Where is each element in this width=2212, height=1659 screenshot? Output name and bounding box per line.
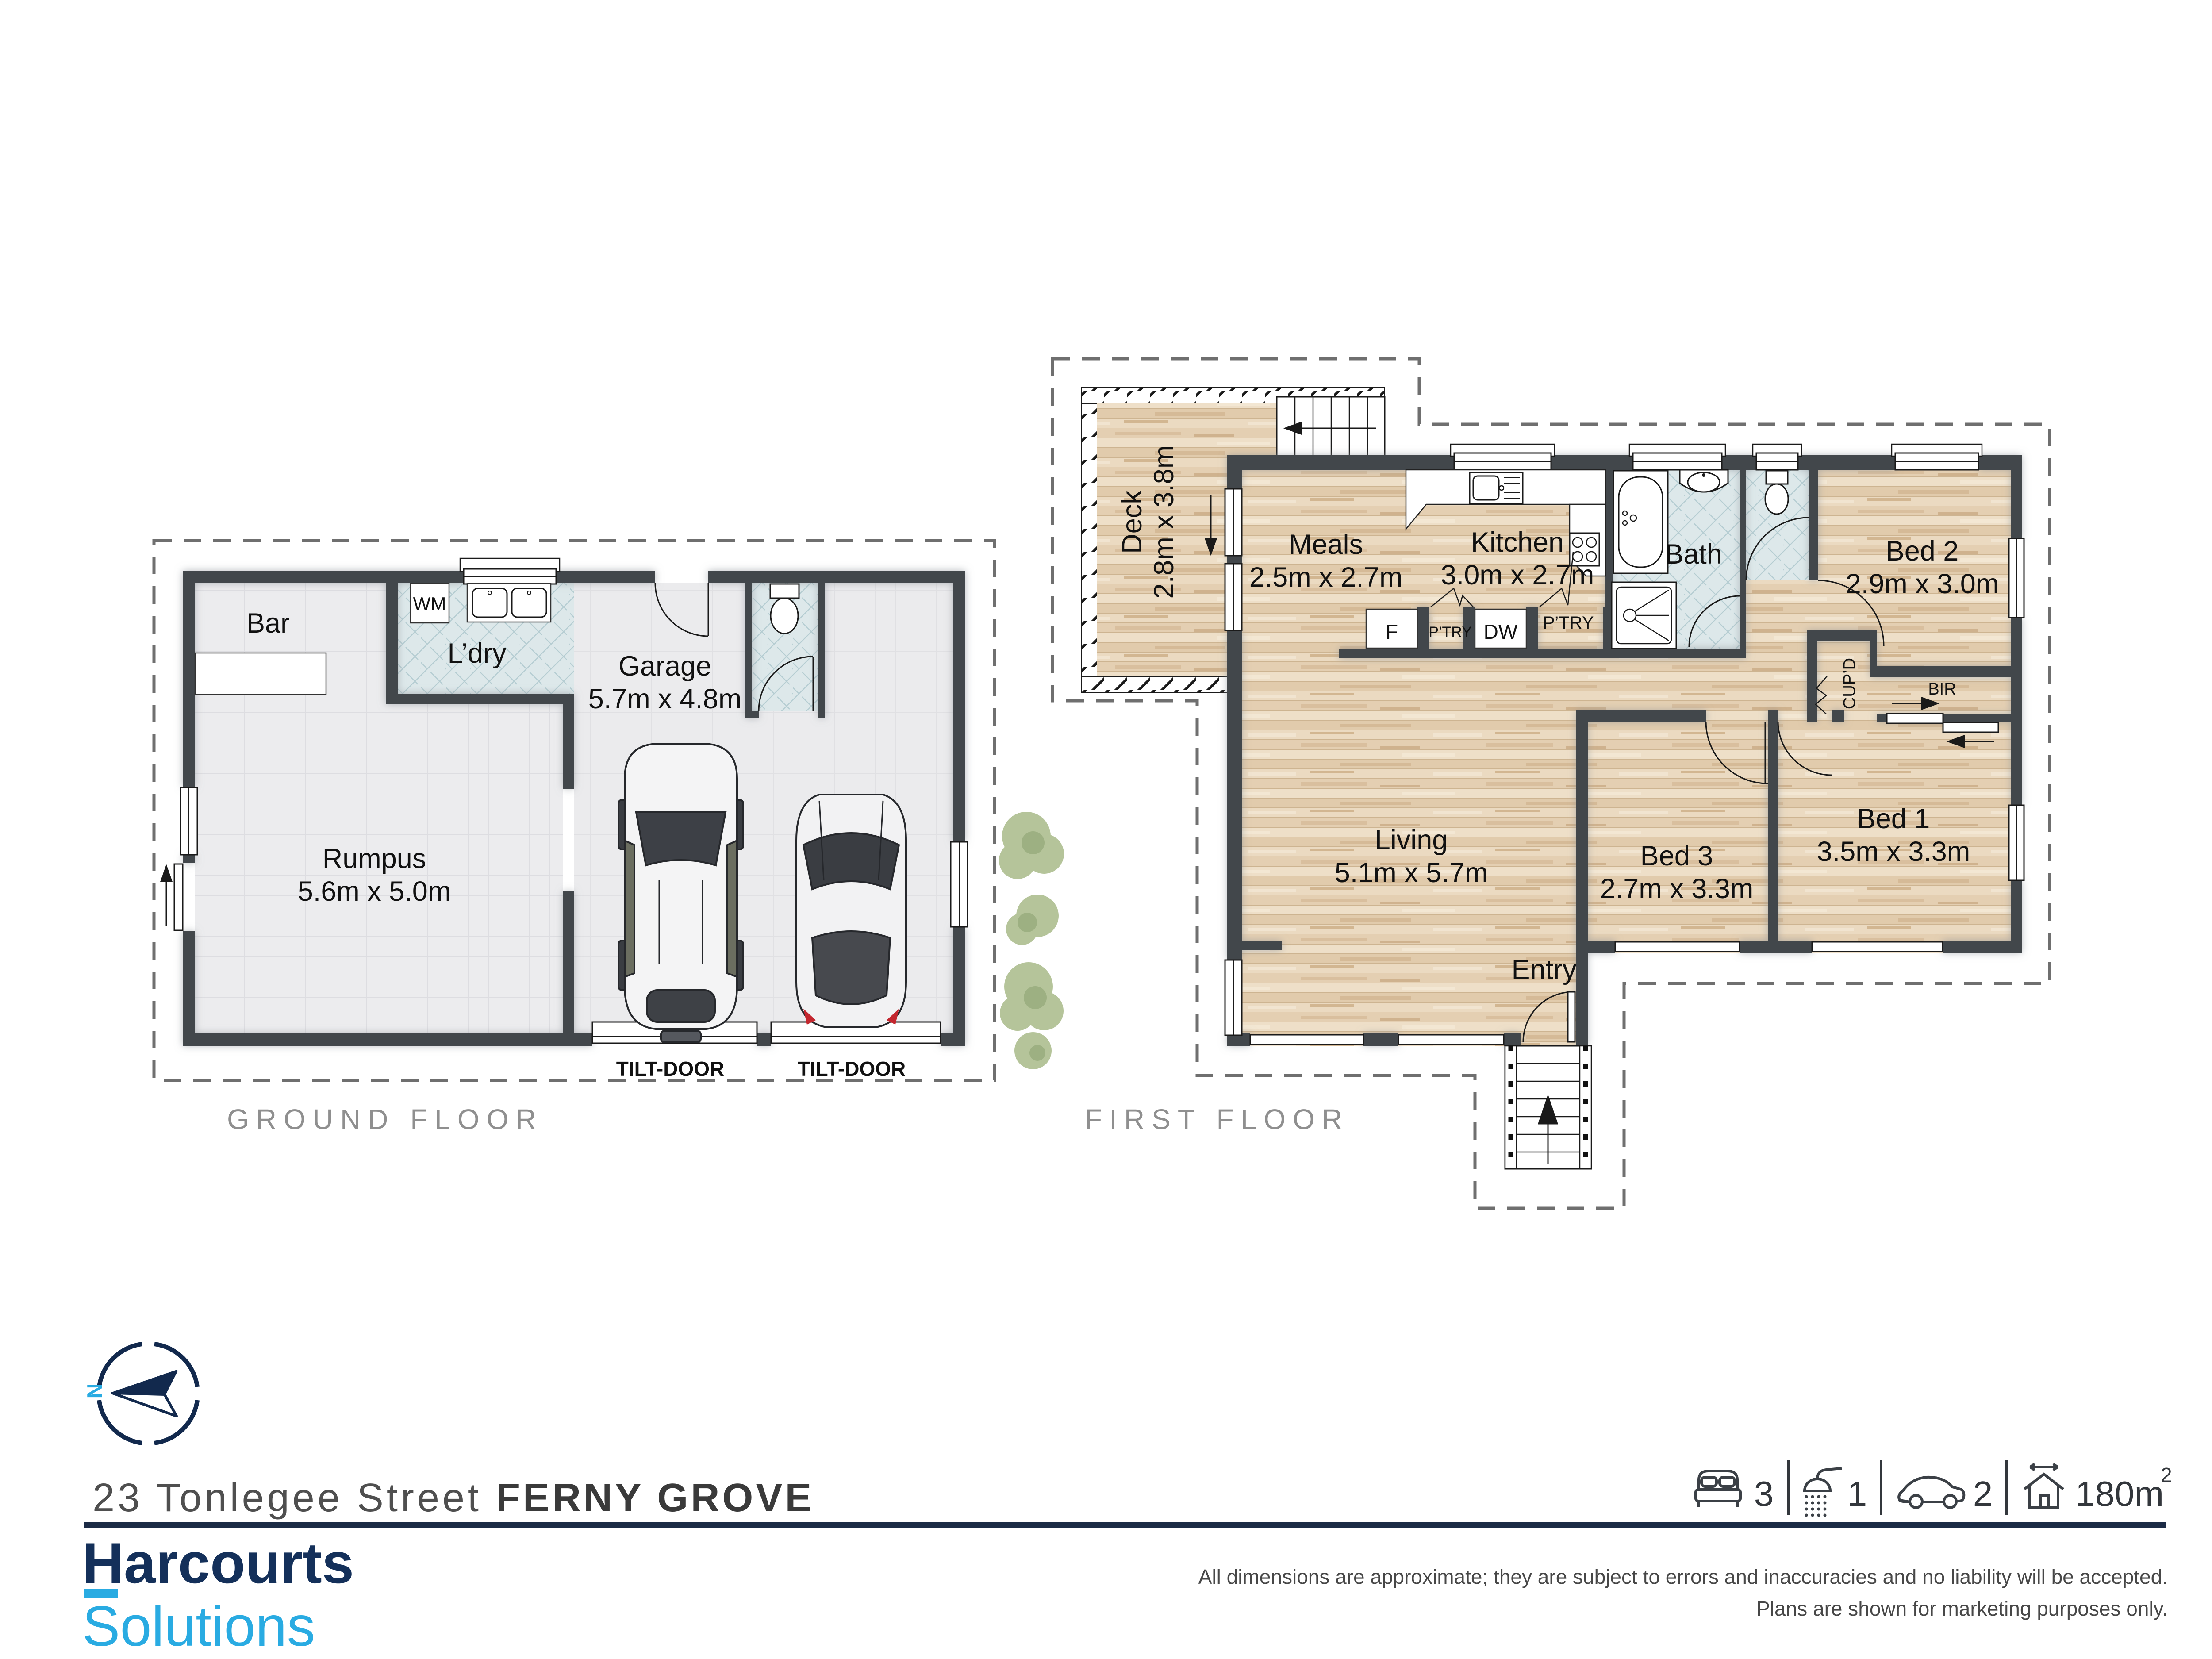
svg-text:P’TRY: P’TRY [1429, 624, 1472, 641]
svg-text:TILT-DOOR: TILT-DOOR [616, 1057, 724, 1080]
svg-text:2: 2 [1973, 1474, 1993, 1513]
svg-text:Bed 1: Bed 1 [1857, 803, 1930, 834]
svg-text:2.7m x 3.3m: 2.7m x 3.3m [1600, 873, 1754, 904]
svg-text:Living: Living [1375, 825, 1448, 856]
svg-text:3.5m x 3.3m: 3.5m x 3.3m [1817, 836, 1970, 867]
svg-text:1: 1 [1847, 1474, 1867, 1513]
svg-text:Rumpus: Rumpus [323, 843, 426, 874]
svg-text:Plans are shown for marketing: Plans are shown for marketing purposes o… [1756, 1597, 2168, 1620]
svg-text:2.8m x 3.8m: 2.8m x 3.8m [1148, 445, 1179, 599]
svg-text:2.9m x 3.0m: 2.9m x 3.0m [1846, 568, 1999, 599]
svg-text:Bed 2: Bed 2 [1886, 536, 1959, 567]
svg-text:2.5m x 2.7m: 2.5m x 2.7m [1249, 562, 1403, 593]
svg-text:Bar: Bar [246, 608, 290, 639]
svg-text:Deck: Deck [1117, 490, 1148, 554]
svg-text:Solutions: Solutions [82, 1595, 315, 1658]
svg-text:3: 3 [1754, 1474, 1774, 1513]
svg-text:CUP’D: CUP’D [1840, 658, 1859, 709]
svg-text:5.1m x 5.7m: 5.1m x 5.7m [1335, 857, 1488, 888]
svg-text:P’TRY: P’TRY [1543, 613, 1594, 633]
svg-text:F: F [1386, 620, 1398, 643]
svg-text:FIRST FLOOR: FIRST FLOOR [1085, 1103, 1349, 1135]
svg-text:Bed 3: Bed 3 [1640, 841, 1713, 872]
svg-text:3.0m x 2.7m: 3.0m x 2.7m [1441, 560, 1594, 591]
svg-text:Meals: Meals [1289, 529, 1363, 560]
svg-text:Bath: Bath [1665, 539, 1722, 570]
svg-text:N: N [84, 1383, 107, 1399]
svg-text:All dimensions are approximate: All dimensions are approximate; they are… [1198, 1565, 2168, 1588]
svg-text:5.7m x 4.8m: 5.7m x 4.8m [588, 684, 742, 714]
svg-text:Harcourts: Harcourts [82, 1531, 354, 1595]
svg-text:DW: DW [1484, 620, 1518, 643]
svg-text:180m: 180m [2075, 1474, 2164, 1513]
svg-text:WM: WM [413, 593, 446, 614]
svg-text:5.6m x 5.0m: 5.6m x 5.0m [298, 876, 451, 907]
svg-text:L’dry: L’dry [447, 638, 507, 669]
svg-text:GROUND FLOOR: GROUND FLOOR [227, 1103, 543, 1135]
svg-text:Entry: Entry [1511, 954, 1577, 985]
svg-text:Kitchen: Kitchen [1471, 527, 1564, 558]
svg-text:Garage: Garage [618, 651, 711, 682]
svg-text:23 Tonlegee Street FERNY GROVE: 23 Tonlegee Street FERNY GROVE [92, 1476, 814, 1520]
svg-text:TILT-DOOR: TILT-DOOR [798, 1057, 906, 1080]
svg-text:BIR: BIR [1928, 680, 1956, 699]
svg-text:2: 2 [2161, 1463, 2172, 1486]
